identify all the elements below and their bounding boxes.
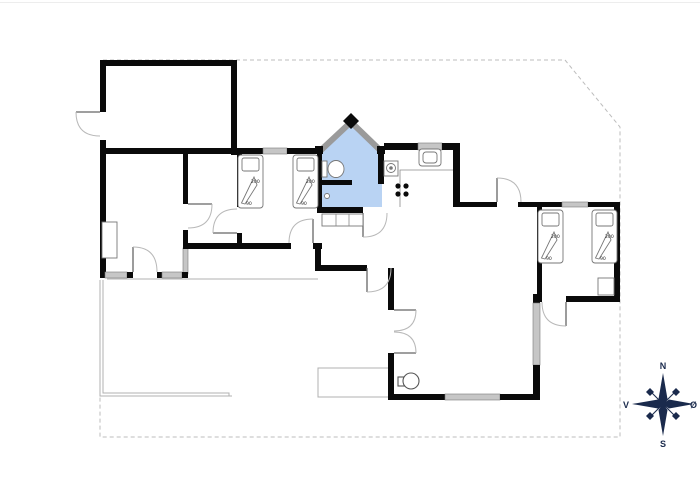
floor-plan-svg: 200 90 200 90 200 90 200 90 — [0, 0, 700, 500]
wall-segment — [315, 249, 321, 271]
wall-segment — [183, 243, 291, 249]
compass-point-west — [632, 400, 663, 409]
double-door-living — [394, 310, 416, 353]
bathroom-divider-wall — [322, 180, 352, 185]
wall-segment — [566, 296, 620, 302]
bed-4: 200 90 — [592, 210, 617, 263]
bed-width-label: 90 — [546, 256, 552, 262]
pillow — [542, 213, 559, 226]
door-pass-room-east — [213, 209, 237, 233]
compass-diagonal-tip — [672, 388, 680, 396]
wall-segment — [315, 146, 323, 154]
wall-segment — [237, 148, 263, 154]
shower-drain-icon — [325, 194, 330, 199]
wall-segment — [518, 202, 537, 207]
wall-segment — [453, 202, 497, 207]
door-pass-room-west — [188, 204, 212, 228]
wall-segment — [388, 353, 394, 400]
wardrobe-icon — [322, 214, 363, 226]
pillow — [596, 213, 613, 226]
compass-diagonal-tip — [646, 412, 654, 420]
compass-label-south: S — [660, 439, 666, 449]
compass-rose: N S V Ø — [623, 361, 697, 449]
window — [445, 394, 500, 400]
compass-label-west: V — [623, 400, 629, 410]
compass-point-south — [659, 404, 668, 436]
bed-width-label: 90 — [301, 201, 307, 207]
left-room-wardrobe-icon — [102, 222, 117, 258]
sink-icon — [423, 152, 437, 163]
compass-center — [659, 400, 668, 409]
kitchen-fixtures — [384, 149, 453, 207]
wall-segment — [378, 152, 384, 184]
door-kitchen-exterior — [497, 178, 521, 202]
oven-icon — [389, 166, 393, 170]
window — [105, 272, 127, 278]
wall-segment — [287, 148, 319, 154]
door-entrance-terrace — [133, 247, 157, 272]
terrace-outline — [100, 279, 318, 396]
top-edge-line — [0, 2, 700, 3]
wall-segment — [100, 66, 106, 112]
toilet-icon — [328, 161, 344, 178]
window — [162, 272, 182, 278]
bathroom-floor-fill — [322, 150, 382, 207]
wall-segment — [127, 272, 133, 278]
wall-segment — [533, 365, 540, 394]
door-annex-exterior — [76, 112, 100, 136]
bed-length-label: 200 — [551, 234, 560, 240]
wall-segment — [313, 243, 322, 249]
wall-segment — [453, 143, 460, 207]
wall-segment — [317, 207, 363, 213]
bed-length-label: 200 — [306, 179, 315, 185]
wall-segment — [100, 272, 105, 278]
cooktop-burners-icon — [395, 183, 408, 196]
toilet-icon — [322, 161, 327, 177]
pillow — [242, 158, 259, 171]
bed-3: 200 90 — [538, 210, 563, 263]
wall-segment — [500, 394, 540, 400]
bed-1: 200 90 — [238, 155, 263, 208]
pillow — [297, 158, 314, 171]
wall-segment — [321, 265, 367, 271]
wall-segment — [157, 272, 162, 278]
wall-segment — [100, 60, 237, 66]
compass-label-north: N — [660, 361, 667, 371]
floor-plan-image: 200 90 200 90 200 90 200 90 — [0, 0, 700, 500]
bed-width-label: 90 — [600, 256, 606, 262]
wall-segment — [537, 202, 562, 207]
closet-icon — [598, 278, 614, 295]
wall-segment — [183, 154, 188, 204]
wall-segment — [183, 230, 188, 244]
wall-segment — [388, 394, 445, 400]
door-bathroom — [363, 213, 387, 237]
door-middle-bedroom — [289, 219, 313, 243]
wall-segment — [377, 146, 385, 154]
compass-diagonal-tip — [672, 412, 680, 420]
window — [562, 202, 588, 207]
wall-segment — [231, 60, 237, 155]
window — [533, 303, 540, 365]
wood-stove-icon — [403, 373, 419, 389]
bed-length-label: 200 — [251, 179, 260, 185]
bed-width-label: 90 — [246, 201, 252, 207]
window — [263, 148, 287, 154]
window — [183, 248, 188, 274]
door-right-bedroom-exterior — [542, 302, 566, 326]
wall-segment — [100, 148, 237, 154]
wall-segment — [533, 294, 540, 303]
compass-label-east: Ø — [690, 400, 697, 410]
entry-step — [318, 368, 392, 397]
wood-stove — [398, 373, 419, 389]
wall-segment — [384, 143, 418, 150]
bed-length-label: 200 — [605, 234, 614, 240]
bed-2: 200 90 — [293, 155, 318, 208]
wall-segment — [182, 272, 188, 278]
door-hall-living — [367, 268, 391, 292]
kitchen-counter — [400, 170, 453, 207]
compass-diagonal-tip — [646, 388, 654, 396]
compass-point-north — [659, 373, 668, 404]
